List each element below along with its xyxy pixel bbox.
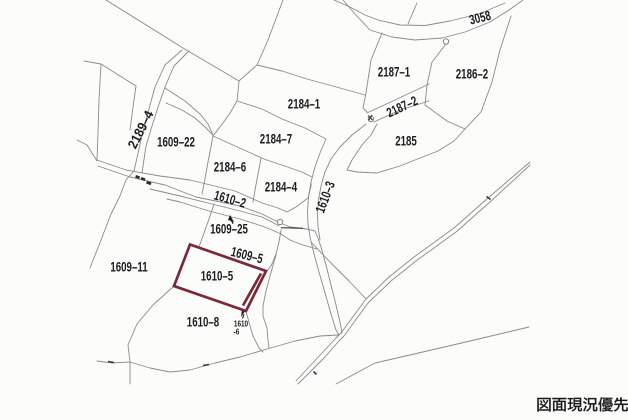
svg-text:1609–25: 1609–25 <box>210 222 248 237</box>
svg-text:2185: 2185 <box>395 134 417 149</box>
svg-text:1610–8: 1610–8 <box>187 315 220 330</box>
svg-text:1610–5: 1610–5 <box>201 269 234 284</box>
svg-text:2184–4: 2184–4 <box>265 180 298 195</box>
svg-text:2184–6: 2184–6 <box>214 160 247 175</box>
svg-text:1609–11: 1609–11 <box>110 260 148 275</box>
svg-text:2187–1: 2187–1 <box>378 65 411 80</box>
svg-text:1609–22: 1609–22 <box>157 135 195 150</box>
svg-text:2186–2: 2186–2 <box>456 67 489 82</box>
svg-text:2184–1: 2184–1 <box>288 97 321 112</box>
svg-text:2184–7: 2184–7 <box>260 132 293 147</box>
svg-text:-6: -6 <box>234 327 240 337</box>
